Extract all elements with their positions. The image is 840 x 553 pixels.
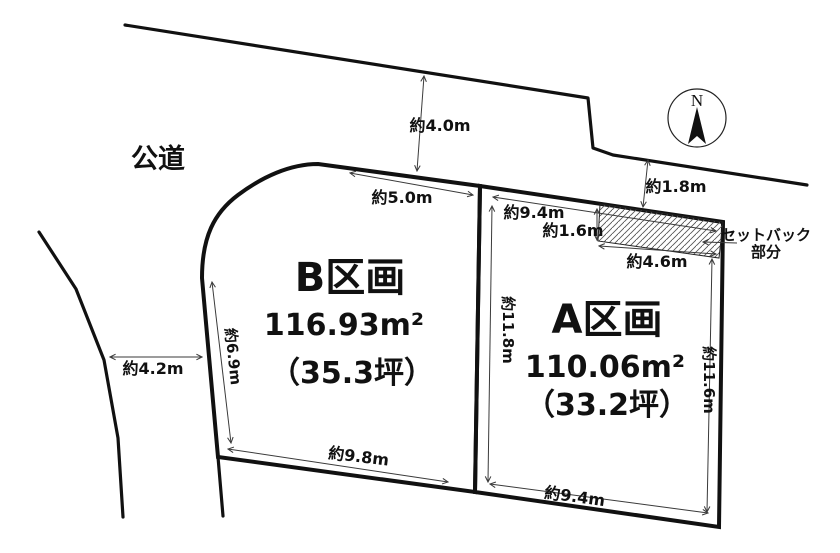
dim-label-road-right: 約1.8m bbox=[645, 177, 706, 196]
dim-label-a-right: 約11.6m bbox=[700, 346, 718, 414]
plot-b-name: B区画 bbox=[295, 255, 406, 301]
plot-a-area-m2: 110.06m² bbox=[525, 350, 685, 385]
dim-label-road-left: 約4.2m bbox=[122, 359, 183, 378]
land-plot-diagram: N 公道 B区画 116.93m² （35.3坪） A区画 110.06m² （… bbox=[0, 0, 840, 553]
setback-label-line1: セットバック bbox=[721, 226, 811, 244]
dim-label-road-top: 約4.0m bbox=[409, 116, 470, 135]
plot-b-area-m2: 116.93m² bbox=[264, 308, 424, 343]
dim-label-b-top: 約5.0m bbox=[371, 188, 432, 207]
dim-label-a-left: 約11.8m bbox=[499, 296, 517, 364]
public-road-label: 公道 bbox=[131, 143, 185, 175]
setback-label-line2: 部分 bbox=[751, 243, 781, 261]
plot-a-area-tsubo: （33.2坪） bbox=[525, 388, 689, 423]
dim-label-a-top: 約9.4m bbox=[503, 203, 564, 222]
plot-b-area-tsubo: （35.3坪） bbox=[270, 356, 434, 391]
plot-a-name: A区画 bbox=[552, 297, 663, 343]
dim-label-setback-depth: 約1.6m bbox=[542, 221, 603, 240]
dim-label-setback-width: 約4.6m bbox=[626, 252, 687, 271]
diagram-background bbox=[0, 0, 840, 553]
diagram-canvas: N 公道 B区画 116.93m² （35.3坪） A区画 110.06m² （… bbox=[0, 0, 840, 553]
